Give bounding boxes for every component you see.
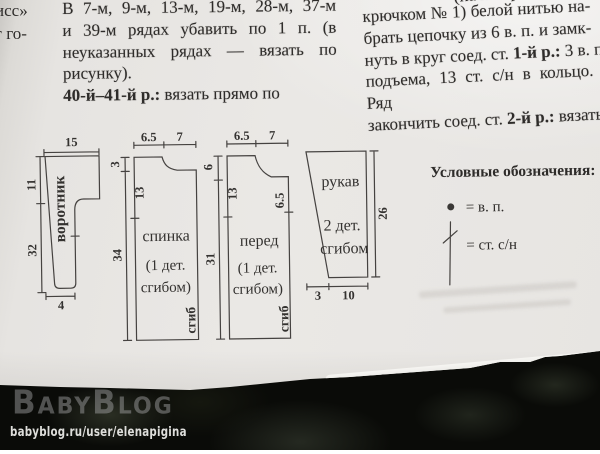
dim-label-front-side: 31	[204, 244, 217, 274]
chain-stitch-dot-symbol	[447, 203, 454, 210]
dim-label-collar-lower: 32	[26, 236, 39, 266]
piece-note: сгибом	[313, 240, 375, 259]
piece-note: сгибом)	[137, 279, 195, 297]
fold-label-front: сгиб	[277, 300, 291, 338]
dim-label-back-top-right: 7	[164, 129, 196, 144]
dim-label-back-top-left: 6.5	[134, 130, 164, 145]
dim-label-sleeve-right: 26	[377, 199, 390, 229]
dim-label-back-side: 34	[111, 240, 124, 270]
dim-label-back-inner: 13	[133, 178, 146, 208]
dim-label-collar-upper: 11	[25, 170, 38, 200]
fold-label-back: сгиб	[184, 301, 198, 339]
legend-item-dc: = ст. с/н	[466, 237, 517, 255]
dim-label-collar-top: 15	[44, 135, 99, 151]
dim-label-back-neck: 3	[109, 150, 122, 178]
dim-label-sleeve-bottom-left: 3	[307, 289, 329, 304]
babyblog-logo: BabyBlog	[12, 384, 174, 422]
piece-label-sleeve: рукав	[311, 173, 369, 192]
dim-label-sleeve-bottom-right: 10	[329, 288, 368, 304]
piece-note: (1 дет.	[136, 257, 194, 275]
dim-label-front-inner: 13	[226, 179, 239, 209]
photo-scene: исс» г го- В 7-м, 9-м, 13-м, 19-м, 28-м,…	[0, 0, 600, 450]
piece-note: 2 дет.	[313, 217, 371, 236]
legend-item-chain: = в. п.	[466, 199, 505, 217]
dim-label-collar-bottom: 4	[49, 298, 73, 313]
dim-label-front-top-right: 7	[257, 128, 288, 143]
piece-note: (1 дет.	[228, 260, 286, 278]
piece-label-front: перед	[230, 232, 288, 251]
dim-label-front-top-left: 6.5	[227, 129, 257, 144]
dim-label-front-neck: 6	[202, 153, 215, 181]
piece-label-back: спинка	[137, 227, 195, 246]
dim-label-front-inner-right: 6.5	[273, 184, 286, 216]
piece-note: сгибом)	[229, 281, 287, 299]
watermark-url: babyblog.ru/user/elenapigina	[10, 424, 187, 440]
piece-label-collar: воротник	[53, 166, 67, 252]
legend-title: Условные обозначения:	[430, 162, 595, 182]
